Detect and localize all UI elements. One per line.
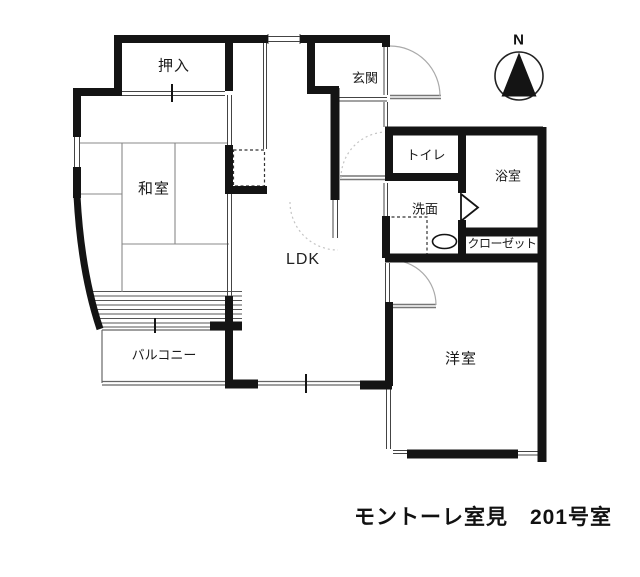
floor-plan-drawing — [0, 0, 640, 577]
room-label-washitsu: 和室 — [138, 178, 170, 199]
room-label-bathroom: 浴室 — [495, 166, 521, 185]
western-room-door-arc — [391, 260, 436, 305]
compass-north-label: N — [513, 32, 525, 49]
washroom-door-arc — [341, 132, 387, 178]
room-label-oshiire: 押入 — [158, 55, 190, 76]
room-label-washroom: 洗面 — [412, 199, 438, 218]
room-label-western-room: 洋室 — [445, 348, 477, 369]
ldk-door-arc — [290, 202, 338, 250]
room-label-closet: クローゼット — [467, 235, 536, 252]
room-label-balcony: バルコニー — [132, 345, 197, 364]
compass-icon — [495, 52, 543, 100]
tatami-lines — [80, 143, 229, 292]
entry-door-arc — [390, 46, 440, 96]
room-label-genkan: 玄関 — [352, 68, 378, 87]
plan-title: モントーレ室見 201号室 — [354, 501, 612, 531]
floor-plan-page: 押入 和室 玄関 トイレ 浴室 洗面 クローゼット LDK バルコニー 洋室 N… — [0, 0, 640, 577]
room-label-ldk: LDK — [286, 251, 320, 269]
kitchen-fixture-box — [234, 150, 265, 186]
bath-door-triangle — [461, 194, 478, 221]
washing-machine-box — [386, 217, 427, 256]
dashed-fixture-boxes — [234, 150, 428, 256]
washbasin-oval — [433, 235, 457, 249]
room-label-toilet: トイレ — [406, 145, 445, 164]
